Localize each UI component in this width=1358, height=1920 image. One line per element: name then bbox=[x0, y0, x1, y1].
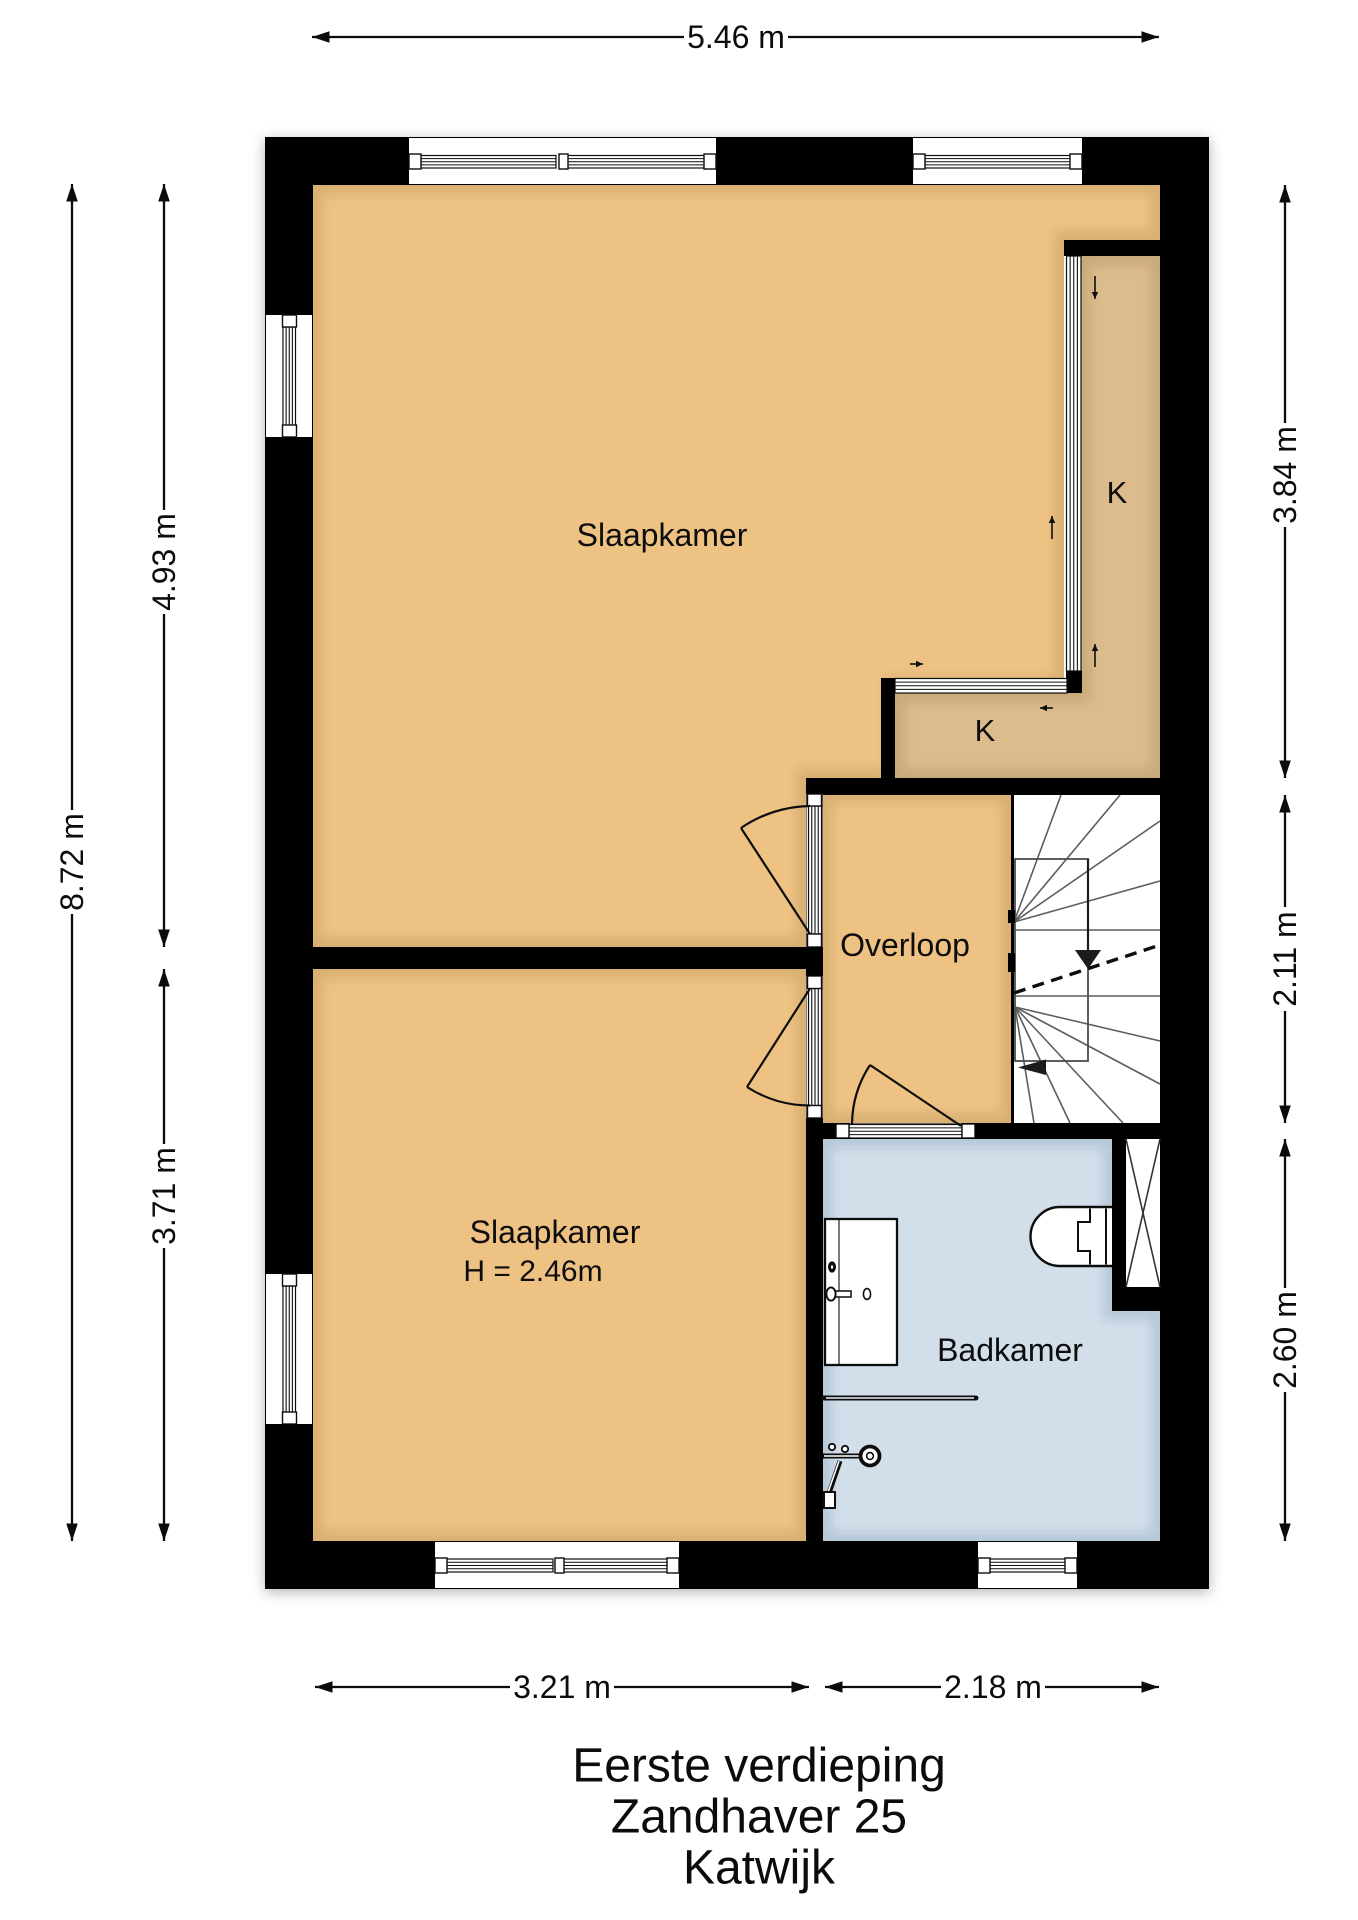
svg-text:K: K bbox=[975, 713, 996, 748]
svg-text:5.46 m: 5.46 m bbox=[687, 19, 785, 55]
svg-text:K: K bbox=[1107, 475, 1128, 510]
svg-text:Katwijk: Katwijk bbox=[683, 1842, 836, 1895]
svg-text:4.93 m: 4.93 m bbox=[146, 513, 182, 611]
svg-text:H = 2.46m: H = 2.46m bbox=[463, 1255, 602, 1288]
svg-text:2.18 m: 2.18 m bbox=[944, 1669, 1042, 1705]
svg-text:2.11 m: 2.11 m bbox=[1267, 911, 1303, 1006]
svg-text:Badkamer: Badkamer bbox=[937, 1332, 1083, 1368]
svg-text:Slaapkamer: Slaapkamer bbox=[470, 1214, 641, 1250]
svg-text:3.21 m: 3.21 m bbox=[513, 1669, 611, 1705]
svg-text:8.72 m: 8.72 m bbox=[54, 813, 90, 911]
svg-text:3.71 m: 3.71 m bbox=[146, 1147, 182, 1245]
svg-text:Zandhaver 25: Zandhaver 25 bbox=[611, 1791, 907, 1844]
svg-text:2.60 m: 2.60 m bbox=[1267, 1291, 1303, 1389]
svg-text:Eerste verdieping: Eerste verdieping bbox=[572, 1740, 946, 1793]
svg-text:Slaapkamer: Slaapkamer bbox=[577, 517, 748, 553]
svg-text:3.84 m: 3.84 m bbox=[1267, 426, 1303, 524]
svg-text:Overloop: Overloop bbox=[840, 927, 970, 963]
